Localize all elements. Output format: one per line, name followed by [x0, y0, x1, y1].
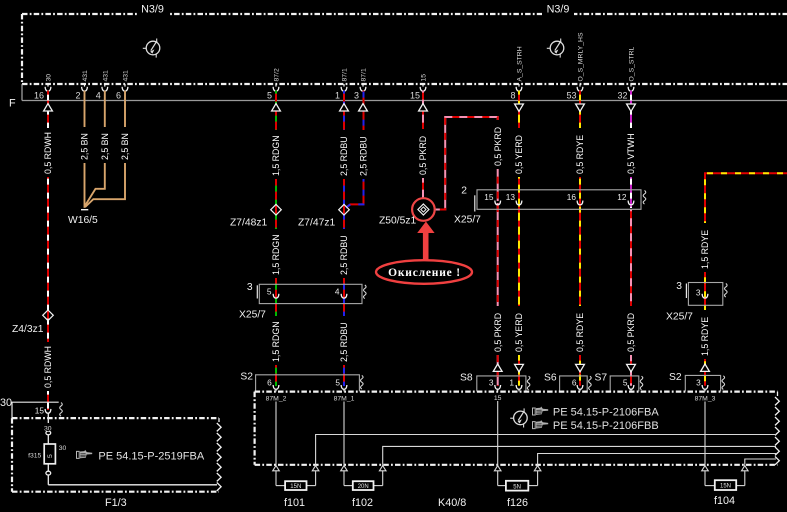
svg-text:8: 8 [510, 91, 515, 101]
svg-text:2,5 BN: 2,5 BN [120, 133, 130, 160]
svg-text:PE 54.15-P-2106FBA: PE 54.15-P-2106FBA [553, 407, 659, 419]
svg-text:S7: S7 [595, 373, 608, 384]
svg-text:3: 3 [354, 91, 359, 101]
svg-text:0,5 PKRD: 0,5 PKRD [418, 136, 428, 175]
svg-text:O_S_STRL: O_S_STRL [629, 47, 636, 82]
svg-text:0,5 PKRD: 0,5 PKRD [493, 313, 503, 352]
svg-text:f102: f102 [352, 497, 373, 509]
svg-text:Z7/47z1: Z7/47z1 [298, 218, 335, 229]
svg-text:Окисление !: Окисление ! [388, 267, 461, 279]
svg-text:O_S_MRLY_HS: O_S_MRLY_HS [578, 32, 585, 81]
svg-text:4: 4 [335, 287, 340, 297]
svg-text:W16/5: W16/5 [68, 215, 98, 226]
svg-text:4: 4 [96, 91, 101, 101]
svg-text:0,5 RDYE: 0,5 RDYE [575, 313, 585, 352]
svg-text:f104: f104 [714, 495, 735, 507]
svg-text:S2: S2 [240, 372, 253, 383]
svg-text:3: 3 [489, 377, 494, 387]
svg-text:15: 15 [35, 406, 45, 416]
svg-text:6: 6 [116, 91, 121, 101]
svg-text:K40/8: K40/8 [438, 497, 466, 509]
svg-text:Z4/3z1: Z4/3z1 [12, 324, 44, 335]
svg-text:1,5 RDGN: 1,5 RDGN [271, 135, 281, 176]
svg-text:6: 6 [267, 377, 272, 387]
svg-text:2,5 RDBU: 2,5 RDBU [339, 322, 349, 362]
svg-text:A_S_STRH: A_S_STRH [517, 46, 524, 81]
svg-text:16: 16 [567, 192, 577, 202]
svg-text:S2: S2 [669, 372, 682, 383]
svg-text:0,5 YERD: 0,5 YERD [514, 135, 524, 174]
svg-text:15: 15 [494, 395, 502, 402]
svg-text:Z50/5z1: Z50/5z1 [379, 216, 416, 227]
svg-text:2,5 RDBU: 2,5 RDBU [359, 136, 369, 176]
svg-text:0,5 RDWH: 0,5 RDWH [43, 132, 53, 174]
svg-text:13: 13 [506, 192, 516, 202]
svg-text:S6: S6 [544, 373, 557, 384]
svg-text:87M_1: 87M_1 [334, 395, 355, 402]
svg-text:0,5 YERD: 0,5 YERD [514, 313, 524, 352]
svg-text:30: 30 [44, 426, 52, 433]
svg-text:53: 53 [566, 91, 576, 101]
svg-text:5: 5 [47, 454, 54, 458]
svg-text:1,5 RDGN: 1,5 RDGN [271, 321, 281, 362]
svg-text:6: 6 [572, 377, 577, 387]
svg-text:15: 15 [410, 91, 420, 101]
svg-text:2: 2 [461, 186, 467, 197]
svg-text:1: 1 [335, 91, 340, 101]
svg-text:N3/9: N3/9 [547, 4, 570, 16]
svg-text:F: F [9, 98, 16, 110]
svg-text:431: 431 [102, 70, 109, 82]
svg-text:3: 3 [696, 288, 701, 298]
svg-text:0,5 PKRD: 0,5 PKRD [493, 127, 503, 166]
svg-text:1,5 RDGN: 1,5 RDGN [271, 234, 281, 275]
svg-text:2,5 RDBU: 2,5 RDBU [339, 136, 349, 176]
svg-text:f315: f315 [28, 453, 41, 460]
svg-text:3: 3 [676, 281, 682, 292]
svg-text:431: 431 [82, 70, 89, 82]
svg-text:2,5 BN: 2,5 BN [80, 133, 90, 160]
svg-text:87M_3: 87M_3 [695, 395, 716, 402]
svg-text:12: 12 [617, 192, 627, 202]
svg-text:15: 15 [421, 74, 428, 82]
svg-text:0,5 PKRD: 0,5 PKRD [626, 313, 636, 352]
svg-text:15N: 15N [720, 484, 731, 490]
svg-text:2,5 RDBU: 2,5 RDBU [339, 235, 349, 275]
svg-text:2,5 BN: 2,5 BN [100, 133, 110, 160]
svg-text:X25/7: X25/7 [239, 310, 266, 321]
svg-text:1,5 RDYE: 1,5 RDYE [700, 230, 710, 269]
svg-text:87M_2: 87M_2 [266, 395, 287, 402]
svg-text:87/1: 87/1 [361, 68, 368, 81]
svg-text:15: 15 [484, 192, 494, 202]
svg-text:15N: 15N [290, 484, 301, 490]
svg-text:16: 16 [34, 91, 44, 101]
svg-text:431: 431 [123, 70, 130, 82]
svg-text:5: 5 [267, 91, 272, 101]
svg-text:PE 54.15-P-2519FBA: PE 54.15-P-2519FBA [98, 451, 204, 463]
svg-text:32: 32 [617, 91, 627, 101]
svg-text:0,5 RDWH: 0,5 RDWH [43, 346, 53, 388]
svg-text:3: 3 [247, 282, 253, 293]
svg-text:Z7/48z1: Z7/48z1 [230, 218, 267, 229]
svg-text:0,5 VTWH: 0,5 VTWH [626, 133, 636, 174]
svg-text:S8: S8 [460, 373, 473, 384]
svg-text:F1/3: F1/3 [105, 497, 127, 509]
svg-text:1,5 RDYE: 1,5 RDYE [700, 317, 710, 356]
svg-text:5N: 5N [513, 484, 521, 490]
svg-text:5: 5 [267, 287, 272, 297]
svg-text:5: 5 [335, 377, 340, 387]
svg-text:X25/7: X25/7 [454, 215, 481, 226]
svg-text:X25/7: X25/7 [666, 312, 693, 323]
svg-text:f126: f126 [507, 497, 528, 509]
svg-text:1: 1 [509, 377, 514, 387]
svg-text:PE 54.15-P-2106FBB: PE 54.15-P-2106FBB [553, 420, 659, 432]
svg-text:30: 30 [0, 397, 12, 409]
svg-text:87/2: 87/2 [274, 68, 281, 81]
svg-text:N3/9: N3/9 [141, 4, 164, 16]
svg-text:f101: f101 [284, 497, 305, 509]
svg-text:3: 3 [696, 377, 701, 387]
svg-text:30: 30 [46, 74, 53, 82]
svg-text:20N: 20N [358, 484, 369, 490]
svg-text:5: 5 [623, 377, 628, 387]
svg-text:87/1: 87/1 [342, 68, 349, 81]
svg-text:30: 30 [59, 445, 67, 452]
svg-text:0,5 RDYE: 0,5 RDYE [575, 135, 585, 174]
svg-text:2: 2 [75, 91, 80, 101]
